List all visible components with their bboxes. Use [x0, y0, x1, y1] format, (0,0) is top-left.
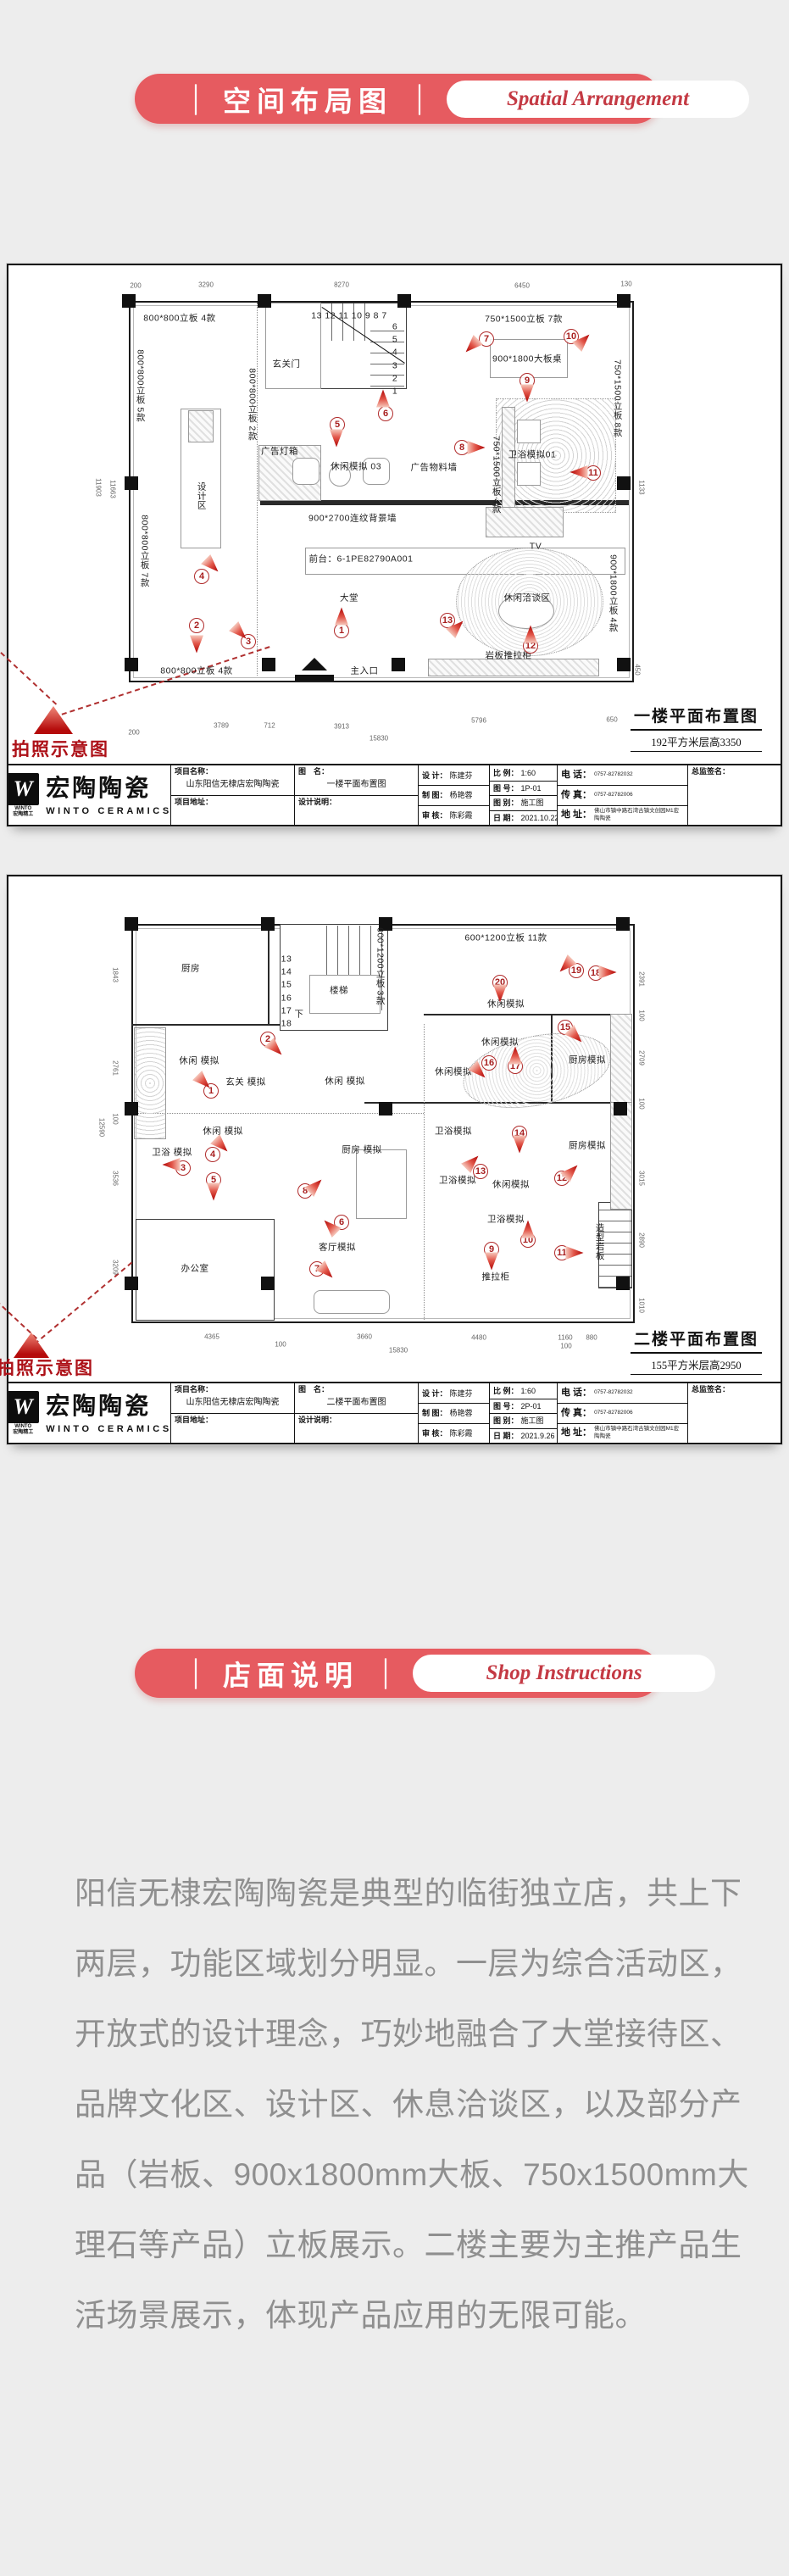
- banner-title-en: Shop Instructions: [486, 1661, 642, 1685]
- banner-shop-instructions: ｜ 店面说明 ｜ Shop Instructions: [135, 1649, 660, 1698]
- field-scale: 比 例：1:60: [489, 765, 557, 781]
- field-date: 日 期：2021.9.26: [489, 1428, 557, 1444]
- winto-logo-en: WINTO CERAMICS: [46, 1423, 170, 1436]
- field-drawing-type: 图 别：施工图: [489, 795, 557, 810]
- banner-divider: ｜: [184, 1652, 208, 1694]
- description-line: 阳信无棣宏陶陶瓷是典型的临街独立店，共上下: [75, 1858, 744, 1928]
- banner-english-pill: Spatial Arrangement: [447, 81, 749, 118]
- banner-divider: ｜: [408, 78, 431, 120]
- banner-divider: ｜: [374, 1652, 397, 1694]
- plan-caption: 二楼平面布置图 155平方米层高2950: [631, 1327, 762, 1375]
- plan-caption: 一楼平面布置图 192平方米层高3350: [631, 704, 762, 752]
- floorplan-sheet-second-floor: 二楼平面布置图 155平方米层高2950 W WINTO 宏陶精工 宏陶陶瓷 W…: [7, 875, 782, 1444]
- winto-logo-mark-icon: W: [8, 1391, 39, 1423]
- plan-caption-title: 一楼平面布置图: [631, 704, 762, 731]
- field-project-address: 项目地址：: [170, 1413, 294, 1443]
- winto-logo-en: WINTO CERAMICS: [46, 805, 170, 818]
- field-address: 地 址：佛山市镇中路石湾古镇文创园M1宏陶陶瓷: [557, 1423, 687, 1443]
- banner-english-pill: Shop Instructions: [413, 1655, 715, 1692]
- field-project-name: 项目名称： 山东阳信无棣店宏陶陶瓷: [170, 1383, 294, 1413]
- winto-logo: W WINTO 宏陶精工 宏陶陶瓷 WINTO CERAMICS: [8, 765, 170, 825]
- plan-caption-subtitle: 155平方米层高2950: [631, 1354, 762, 1375]
- field-address: 地 址：佛山市镇中路石湾古镇文创园M1宏陶陶瓷: [557, 805, 687, 825]
- field-project-address: 项目地址：: [170, 795, 294, 825]
- banner-divider: ｜: [184, 78, 208, 120]
- field-drawing-name: 图 名： 一楼平面布置图: [294, 765, 418, 795]
- field-signature: 总监签名：: [687, 765, 781, 825]
- field-fax: 传 真：0757-82782006: [557, 1403, 687, 1422]
- description-line: 两层，功能区域划分明显。一层为综合活动区，: [75, 1928, 744, 1999]
- field-phone: 电 话：0757-82782032: [557, 765, 687, 785]
- banner-title-cn: 店面说明: [223, 1653, 358, 1694]
- field-checker: 审 核：陈彩霞: [418, 805, 489, 825]
- title-block: W WINTO 宏陶精工 宏陶陶瓷 WINTO CERAMICS 项目名称： 山…: [8, 1382, 781, 1443]
- banner-title-en: Spatial Arrangement: [507, 87, 689, 111]
- field-checker: 审 核：陈彩霞: [418, 1423, 489, 1443]
- winto-logo-mark-icon: W: [8, 773, 39, 805]
- field-drafter: 制 图：杨艳蓉: [418, 785, 489, 804]
- field-drawing-no: 图 号：2P-01: [489, 1399, 557, 1414]
- field-designer: 设 计：陈建芬: [418, 765, 489, 785]
- field-fax: 传 真：0757-82782006: [557, 785, 687, 804]
- winto-logo: W WINTO 宏陶精工 宏陶陶瓷 WINTO CERAMICS: [8, 1383, 170, 1443]
- field-designer: 设 计：陈建芬: [418, 1383, 489, 1403]
- title-block: W WINTO 宏陶精工 宏陶陶瓷 WINTO CERAMICS 项目名称： 山…: [8, 764, 781, 825]
- shop-description: 阳信无棣宏陶陶瓷是典型的临街独立店，共上下 两层，功能区域划分明显。一层为综合活…: [75, 1858, 744, 2351]
- banner-spatial-arrangement: ｜ 空间布局图 ｜ Spatial Arrangement: [135, 74, 660, 124]
- winto-logo-cn: 宏陶陶瓷: [46, 772, 170, 804]
- field-drawing-name: 图 名： 二楼平面布置图: [294, 1383, 418, 1413]
- field-signature: 总监签名：: [687, 1383, 781, 1443]
- field-design-notes: 设计说明：: [294, 1413, 418, 1443]
- field-phone: 电 话：0757-82782032: [557, 1383, 687, 1403]
- plan-caption-subtitle: 192平方米层高3350: [631, 731, 762, 752]
- winto-logo-mark-caption: WINTO 宏陶精工: [8, 1424, 39, 1435]
- description-line: 理石等产品）立板展示。二楼主要为主推产品生: [75, 2210, 744, 2280]
- banner-title-cn: 空间布局图: [223, 79, 392, 120]
- description-line: 开放式的设计理念，巧妙地融合了大堂接待区、: [75, 1999, 744, 2069]
- description-line: 品牌文化区、设计区、休息洽谈区，以及部分产: [75, 2069, 744, 2139]
- field-project-name: 项目名称： 山东阳信无棣店宏陶陶瓷: [170, 765, 294, 795]
- winto-logo-mark-caption: WINTO 宏陶精工: [8, 806, 39, 817]
- plan-caption-title: 二楼平面布置图: [631, 1327, 762, 1354]
- field-date: 日 期：2021.10.22: [489, 810, 557, 826]
- field-drawing-no: 图 号：1P-01: [489, 781, 557, 796]
- description-line: 品（岩板、900x1800mm大板、750x1500mm大: [75, 2139, 744, 2210]
- floorplan-sheet-first-floor: 一楼平面布置图 192平方米层高3350 W WINTO 宏陶精工 宏陶陶瓷 W…: [7, 264, 782, 826]
- field-drafter: 制 图：杨艳蓉: [418, 1403, 489, 1422]
- winto-logo-cn: 宏陶陶瓷: [46, 1390, 170, 1422]
- page: ｜ 空间布局图 ｜ Spatial Arrangement 一楼平面布置图 19…: [0, 0, 789, 2576]
- field-scale: 比 例：1:60: [489, 1383, 557, 1399]
- field-design-notes: 设计说明：: [294, 795, 418, 825]
- field-drawing-type: 图 别：施工图: [489, 1413, 557, 1428]
- description-line: 活场景展示，体现产品应用的无限可能。: [75, 2280, 744, 2351]
